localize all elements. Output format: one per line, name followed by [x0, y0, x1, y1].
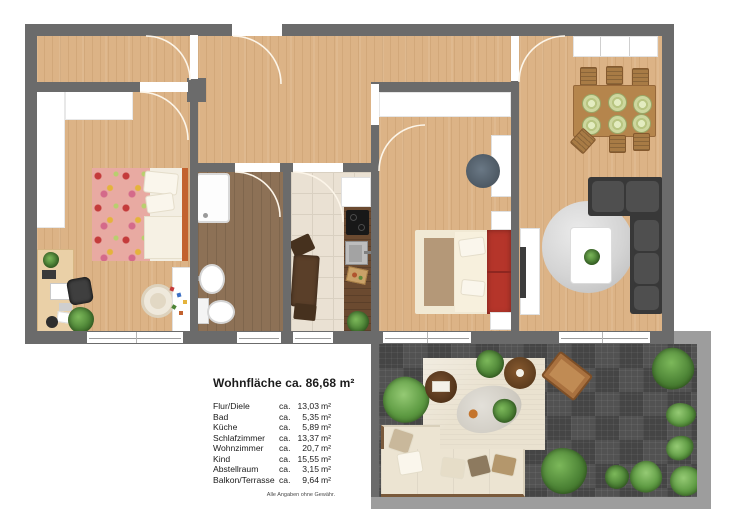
room-area: 13,03: [294, 401, 319, 412]
approx-label: ca.: [279, 401, 294, 412]
table-plant: [584, 249, 600, 265]
hallway-floor-top: [198, 36, 511, 83]
sofa-cushion: [634, 253, 659, 284]
entry-door-opening: [232, 24, 282, 36]
legend-row: Balkon/Terrasseca.9,64m²: [213, 475, 335, 486]
office-chair: [66, 276, 94, 306]
legend-row: Abstellraumca.3,15m²: [213, 464, 335, 475]
room-area: 5,89: [294, 422, 319, 433]
toy: [179, 311, 183, 315]
approx-label: ca.: [279, 412, 294, 423]
dining-chair: [606, 66, 623, 85]
kids-shelf: [172, 267, 191, 332]
area-unit: m²: [319, 433, 335, 444]
book-stack: [432, 381, 450, 392]
desk-tablet: [42, 270, 56, 279]
legend-title: Wohnfläche ca. 86,68 m²: [213, 376, 335, 390]
wall-bath-kitchen-divider: [283, 163, 291, 331]
room-name: Küche: [213, 422, 279, 433]
coffee-table: [570, 227, 612, 284]
balcony-wall-right: [697, 331, 711, 509]
nightstand: [491, 211, 512, 230]
kids-wardrobe-left: [36, 91, 65, 228]
bathroom-door-opening: [235, 163, 280, 172]
side-table: [504, 357, 536, 389]
room-name: Kind: [213, 454, 279, 465]
room-name: Flur/Diele: [213, 401, 279, 412]
storage-door-opening: [190, 35, 198, 79]
armchair-cushion: [150, 293, 166, 309]
legend-row: Kindca.15,55m²: [213, 454, 335, 465]
hallway-floor-lower: [198, 82, 371, 164]
kitchen-window: [293, 332, 333, 343]
headboard-seam: [487, 271, 511, 273]
sideboard-divider: [600, 37, 601, 56]
bed-pillow: [460, 279, 486, 297]
wall-hall-bedroom: [371, 82, 519, 92]
balcony-wall-top-piece: [674, 331, 697, 344]
legend-row: Schlafzimmerca.13,37m²: [213, 433, 335, 444]
room-name: Abstellraum: [213, 464, 279, 475]
room-name: Schlafzimmer: [213, 433, 279, 444]
dining-chair: [609, 135, 626, 153]
bathroom-window: [237, 332, 281, 343]
kitchen-sink: [345, 241, 368, 265]
kids-bed: [92, 168, 188, 261]
bedroom-armchair: [466, 154, 500, 188]
outdoor-pillow: [440, 456, 467, 479]
floorplan-canvas: Wohnfläche ca. 86,68 m² Flur/Dieleca.13,…: [0, 0, 743, 520]
kids-bed-headboard: [182, 168, 188, 261]
legend-row: Wohnzimmerca.20,7m²: [213, 443, 335, 454]
area-legend: Wohnfläche ca. 86,68 m² Flur/Dieleca.13,…: [213, 376, 335, 498]
nightstand: [490, 312, 512, 330]
dining-chair: [633, 133, 650, 151]
sofa-cushion: [634, 220, 659, 251]
area-unit: m²: [319, 454, 335, 465]
room-name: Bad: [213, 412, 279, 423]
legend-row: Kücheca.5,89m²: [213, 422, 335, 433]
kids-room-window: [87, 332, 183, 343]
plate: [608, 115, 627, 134]
area-unit: m²: [319, 443, 335, 454]
approx-label: ca.: [279, 422, 294, 433]
kids-bed-duvet: [92, 168, 150, 261]
legend-rows: Flur/Dieleca.13,03m² Badca.5,35m² Küchec…: [213, 401, 335, 485]
burner: [358, 224, 365, 231]
toilet-bowl: [207, 300, 235, 324]
sofa-cushion: [592, 181, 624, 212]
burner: [350, 214, 357, 221]
bedroom-door-opening: [371, 84, 379, 125]
kitchen-door-opening: [293, 163, 343, 172]
balcony-wall-bottom: [371, 497, 711, 509]
double-bed: [415, 230, 511, 314]
kids-bed-pillow: [145, 192, 175, 214]
room-name: Wohnzimmer: [213, 443, 279, 454]
window-divider: [427, 332, 428, 343]
area-unit: m²: [319, 401, 335, 412]
room-area: 15,55: [294, 454, 319, 465]
food-item: [352, 272, 358, 278]
plate: [608, 93, 627, 112]
kids-wardrobe-top: [65, 91, 133, 120]
kitchen-cabinet: [341, 177, 371, 207]
wall-top: [25, 24, 674, 36]
shower-tray: [196, 173, 230, 223]
sofa-cushion: [626, 181, 659, 212]
legend-row: Flur/Dieleca.13,03m²: [213, 401, 335, 412]
plate: [633, 95, 652, 114]
food-item: [358, 275, 363, 280]
room-name: Balkon/Terrasse: [213, 475, 279, 486]
wall-junction: [187, 78, 206, 102]
approx-label: ca.: [279, 464, 294, 475]
cup: [516, 369, 524, 377]
tv: [520, 247, 526, 298]
sink-handle: [364, 251, 371, 254]
desk-keyboard: [59, 303, 72, 311]
kitchen-table: [290, 254, 320, 308]
room-area: 13,37: [294, 433, 319, 444]
area-unit: m²: [319, 464, 335, 475]
approx-label: ca.: [279, 433, 294, 444]
shower-drain: [203, 213, 208, 218]
desk-lamp: [46, 316, 58, 328]
window-divider: [136, 332, 137, 343]
window-sideboard: [573, 36, 658, 57]
approx-label: ca.: [279, 443, 294, 454]
cooktop: [346, 210, 369, 235]
window-divider: [602, 332, 603, 343]
bedroom-wardrobe: [379, 92, 511, 117]
room-area: 5,35: [294, 412, 319, 423]
kids-bed-blanket: [144, 216, 184, 259]
room-area: 20,7: [294, 443, 319, 454]
desk-plant: [43, 252, 59, 268]
sofa-cushion: [634, 286, 659, 310]
area-unit: m²: [319, 412, 335, 423]
dining-chair: [580, 67, 597, 86]
living-balcony-door: [559, 332, 650, 343]
area-unit: m²: [319, 422, 335, 433]
room-area: 3,15: [294, 464, 319, 475]
room-area: 9,64: [294, 475, 319, 486]
storage-room-floor: [36, 35, 190, 83]
bed-runner: [424, 238, 454, 306]
bed-pillow: [458, 236, 486, 257]
wall-left: [25, 24, 37, 344]
plate: [632, 114, 651, 133]
bathroom-sink: [199, 264, 225, 294]
kitchen-chair: [293, 303, 317, 321]
outdoor-pillow: [396, 450, 423, 476]
candle: [468, 409, 479, 420]
area-unit: m²: [319, 475, 335, 486]
bed-headboard: [487, 230, 511, 314]
living-door-opening: [511, 36, 519, 81]
plate: [582, 94, 601, 113]
kids-bed-pillow: [143, 170, 179, 195]
sideboard-divider: [629, 37, 630, 56]
side-table: [425, 371, 457, 403]
sink-basin: [349, 245, 362, 262]
approx-label: ca.: [279, 475, 294, 486]
balcony-wall-left: [371, 344, 379, 497]
approx-label: ca.: [279, 454, 294, 465]
legend-row: Badca.5,35m²: [213, 412, 335, 423]
toy: [183, 300, 187, 304]
wall-right: [662, 24, 674, 344]
disclaimer: Alle Angaben ohne Gewähr.: [213, 492, 335, 498]
kids-door-opening: [140, 82, 188, 92]
